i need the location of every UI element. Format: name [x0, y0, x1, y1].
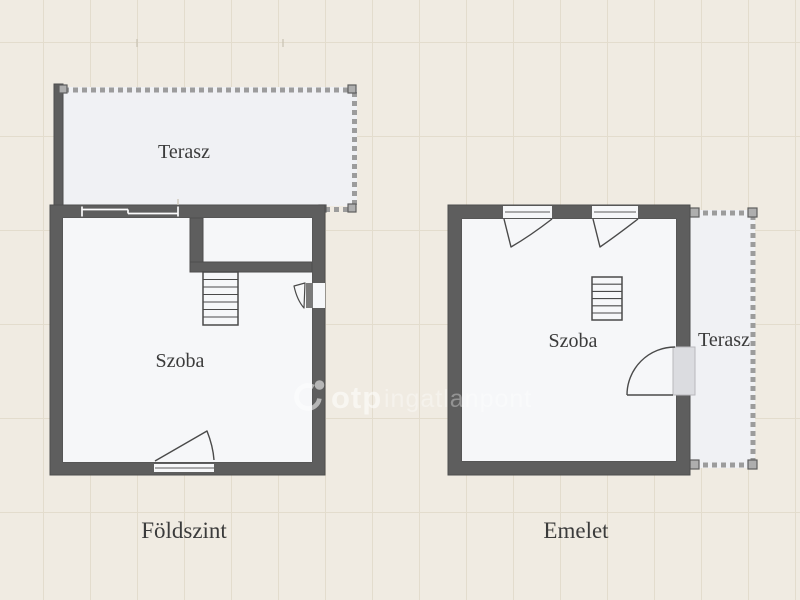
otp-logo-dot-icon	[315, 380, 325, 390]
stairs-icon	[203, 272, 238, 325]
room-floor	[63, 218, 312, 462]
partition-wall	[190, 262, 312, 272]
terrace-post-icon	[690, 460, 699, 469]
terrace-post-icon	[690, 208, 699, 217]
room-label: Szoba	[549, 330, 598, 352]
terrace-label: Terasz	[698, 329, 750, 351]
terrace-side-wall	[54, 84, 63, 206]
terrace-post-icon	[748, 208, 757, 217]
terrace-post-icon	[748, 460, 757, 469]
watermark-suffix: ingatlanpont	[384, 385, 532, 413]
floor-caption: Emelet	[543, 518, 609, 543]
ground-terrace: Terasz	[54, 84, 357, 212]
room-label: Szoba	[156, 350, 205, 372]
terrace-post-icon	[348, 204, 356, 212]
watermark: otp ingatlanpont	[295, 380, 532, 415]
floorplan-canvas: Terasz Szoba Földszi	[0, 0, 800, 600]
stairs-icon	[592, 277, 622, 320]
ground-floor-plan: Terasz Szoba Földszi	[50, 84, 357, 543]
upper-terrace: Terasz	[690, 208, 757, 469]
watermark-brand: otp	[331, 380, 382, 415]
terrace-post-icon	[348, 85, 356, 93]
floor-caption: Földszint	[141, 518, 227, 543]
terrace-label: Terasz	[158, 141, 210, 163]
terrace-post-icon	[59, 85, 67, 93]
